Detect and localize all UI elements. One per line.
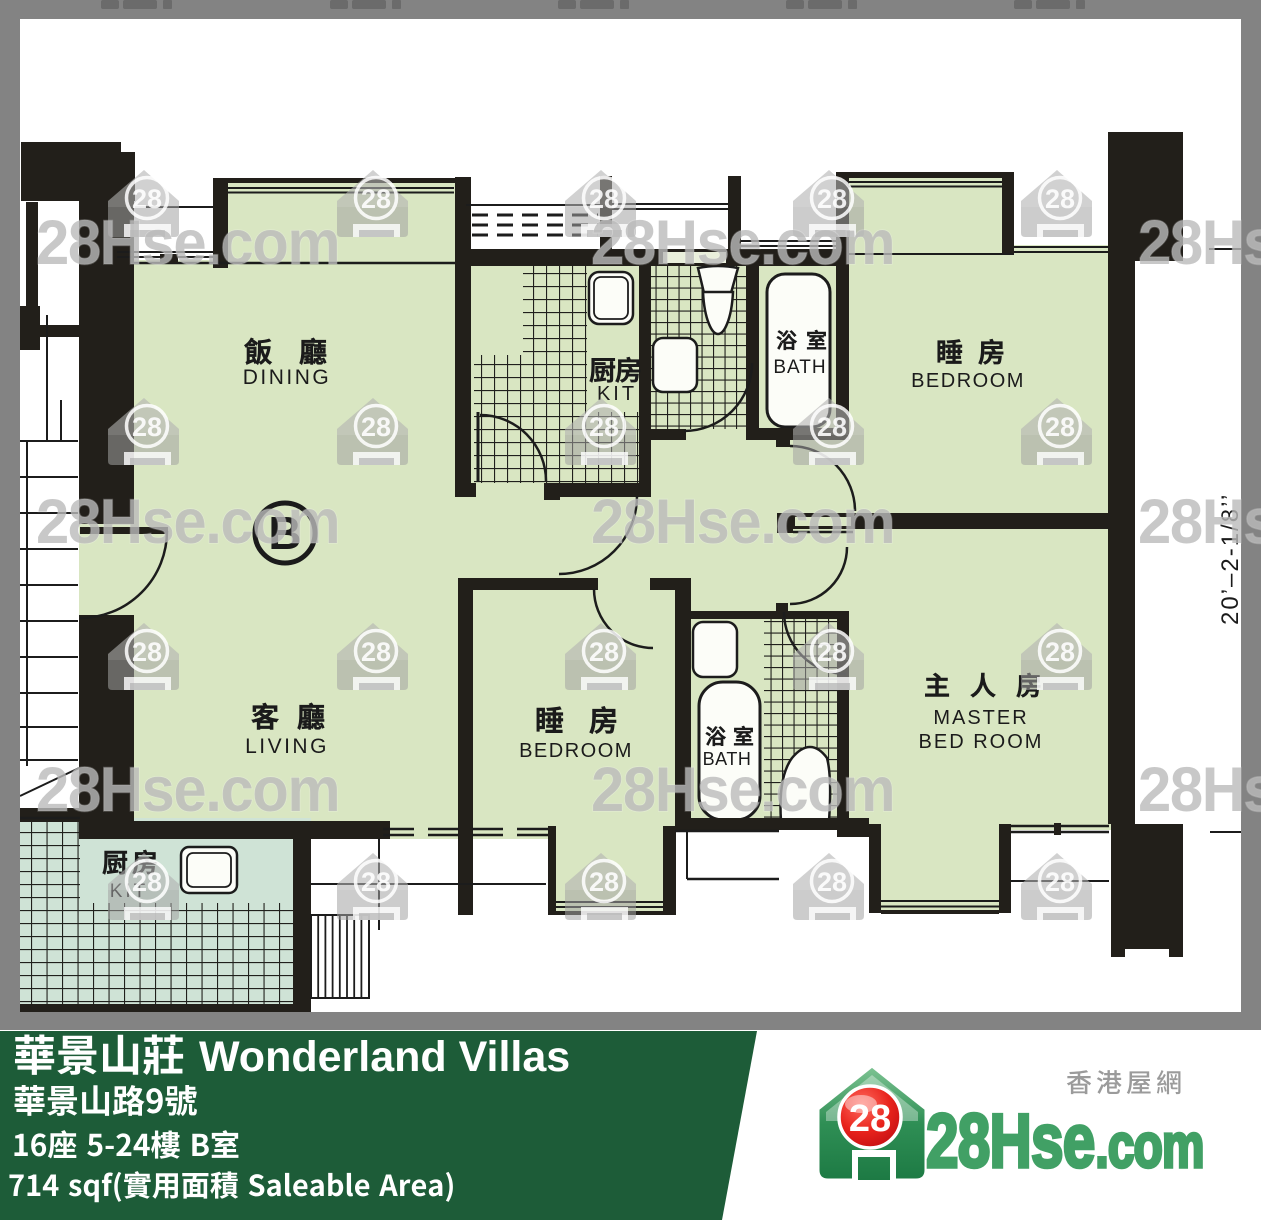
- svg-text:28Hse.com: 28Hse.com: [591, 487, 894, 558]
- svg-text:28Hse.com: 28Hse.com: [36, 487, 339, 558]
- svg-text:BED ROOM: BED ROOM: [919, 731, 1044, 753]
- svg-text:BEDROOM: BEDROOM: [911, 370, 1025, 392]
- svg-text:28Hse.com: 28Hse.com: [1138, 487, 1261, 558]
- svg-text:28Hse.com: 28Hse.com: [591, 755, 894, 826]
- svg-text:28Hse.com: 28Hse.com: [1138, 755, 1261, 826]
- svg-text:28Hse.com: 28Hse.com: [36, 208, 339, 279]
- svg-text:28Hse.com: 28Hse.com: [926, 1100, 1204, 1184]
- svg-text:28Hse.com: 28Hse.com: [591, 208, 894, 279]
- svg-text:MASTER: MASTER: [933, 707, 1028, 729]
- svg-text:28Hse.com: 28Hse.com: [1138, 208, 1261, 279]
- svg-text:BATH: BATH: [773, 357, 826, 378]
- svg-text:DINING: DINING: [243, 366, 332, 389]
- svg-text:Wonderland Villas: Wonderland Villas: [199, 1033, 570, 1081]
- svg-text:28: 28: [849, 1098, 891, 1140]
- svg-text:28Hse.com: 28Hse.com: [36, 755, 339, 826]
